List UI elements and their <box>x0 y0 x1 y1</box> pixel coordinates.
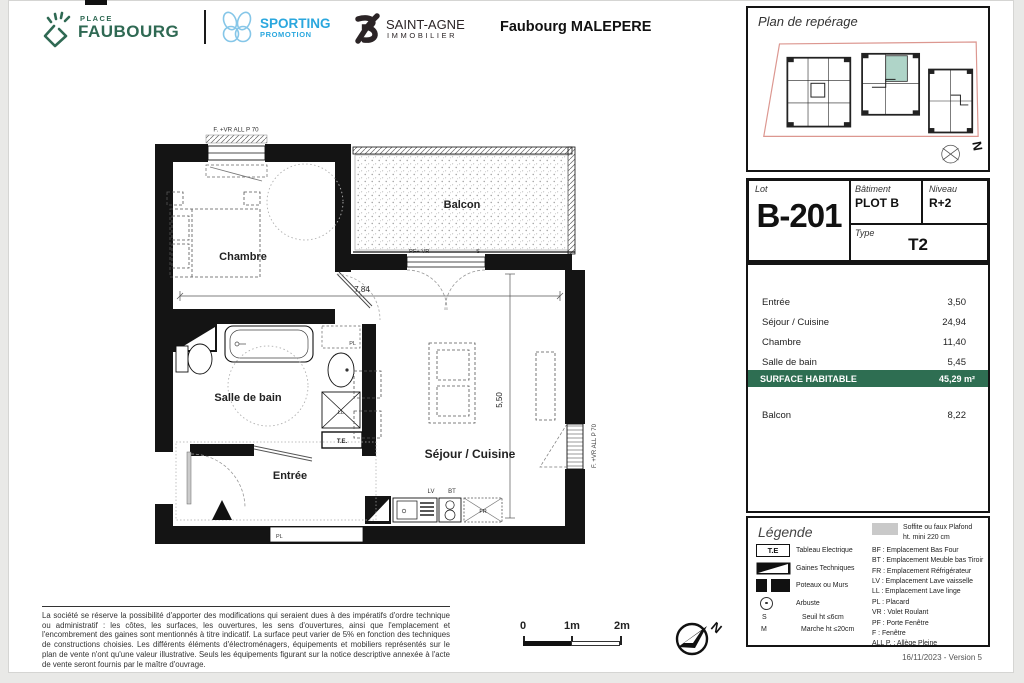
balcon-label: Balcon <box>762 410 791 421</box>
batiment-value: PLOT B <box>849 194 921 210</box>
legend-abbr: PL : Placard <box>872 598 990 608</box>
building-b <box>862 54 919 115</box>
print-mark <box>85 0 107 5</box>
dimension-width <box>177 291 563 301</box>
lot-value: B-201 <box>749 197 849 235</box>
highlighted-unit <box>886 56 908 82</box>
chambre-furniture <box>167 192 260 277</box>
soffite-label-1: Soffite ou faux Plafond <box>903 523 972 533</box>
fr-label: FR <box>479 509 486 515</box>
legend-abbr: BT : Emplacement Meuble bas Tiroir <box>872 556 990 566</box>
legend-label: Poteaux ou Murs <box>796 582 848 589</box>
surface-row: Chambre 11,40 <box>748 333 988 353</box>
batiment-label: Bâtiment <box>849 181 921 194</box>
soffite-item: Soffite ou faux Plafond ht. mini 220 cm <box>872 523 990 544</box>
sejour-furniture <box>354 343 555 438</box>
dim-height-label: 5,50 <box>495 392 504 408</box>
surfaces-box: Entrée 3,50 Séjour / Cuisine 24,94 Chamb… <box>746 263 990 513</box>
legend-label: Gaines Techniques <box>796 565 854 572</box>
disclaimer: La société se réserve la possibilité d'a… <box>42 606 450 669</box>
legend-label: Marche ht ≤20cm <box>801 626 854 633</box>
surface-value: 24,94 <box>942 317 966 328</box>
place-brand-bottom: FAUBOURG <box>78 22 179 42</box>
legend-item: Poteaux ou Murs <box>756 579 868 592</box>
project-title: Faubourg MALEPERE <box>500 19 651 35</box>
balcon-row: Balcon 8,22 <box>748 406 988 426</box>
scale-0: 0 <box>520 620 526 632</box>
turning-circle-chambre <box>267 164 343 240</box>
legend-left-column: T.E Tableau Electrique Gaines Techniques… <box>756 544 868 637</box>
sporting-butterfly-icon <box>218 9 256 45</box>
habitable-value: 45,29 m² <box>939 374 975 384</box>
legend-abbr: VR : Volet Roulant <box>872 608 990 618</box>
niveau-cell: Niveau R+2 <box>923 181 987 225</box>
window-top-label: F. +VR ALL P 70 <box>213 127 259 134</box>
bathroom: Salle de bain PL LL T.E. <box>176 326 362 461</box>
surface-label: Entrée <box>762 297 790 308</box>
room-label-sejour: Séjour / Cuisine <box>425 447 516 461</box>
scale-segment-solid <box>523 641 571 646</box>
room-label-entree: Entrée <box>273 470 307 482</box>
dim-width-label: 7,84 <box>354 285 370 294</box>
legend-abbr: F : Fenêtre <box>872 629 990 639</box>
seuil-symbol: S <box>756 614 802 621</box>
surface-label: Séjour / Cuisine <box>762 317 829 328</box>
legend-abbr: ALL P. : Allège Pleine <box>872 639 990 649</box>
marche-symbol: M <box>756 626 801 633</box>
legend-title: Légende <box>758 524 813 540</box>
legend-label: Seuil ht ≤6cm <box>802 614 844 621</box>
niveau-label: Niveau <box>923 181 987 194</box>
header: PLACE FAUBOURG SPORTING PROMOTION SAINT-… <box>36 8 676 52</box>
window-right: F. +VR ALL P 70 <box>540 423 598 469</box>
poteaux-symbol <box>756 579 796 592</box>
surface-value: 5,45 <box>948 357 967 368</box>
compass-north-label: N <box>708 619 724 637</box>
balcony-door: PF+ VR S <box>407 249 485 310</box>
habitable-label: SURFACE HABITABLE <box>760 374 857 384</box>
reperage-title: Plan de repérage <box>758 14 858 29</box>
building-a <box>787 58 850 127</box>
reperage-compass-icon: N <box>942 140 986 163</box>
legend-abbr: FR : Emplacement Réfrigérateur <box>872 567 990 577</box>
legend-item: Arbuste <box>756 597 868 610</box>
scale-segment-open <box>571 641 620 646</box>
balcon-value: 8,22 <box>948 410 967 421</box>
reperage-box: Plan de repérage <box>746 6 990 172</box>
legend-abbr: BF : Emplacement Bas Four <box>872 546 990 556</box>
lot-box: Lot B-201 Bâtiment PLOT B Niveau R+2 Typ… <box>746 178 990 263</box>
legend-abbr: PF : Porte Fenêtre <box>872 619 990 629</box>
saint-agne-icon <box>352 10 384 46</box>
building-c <box>929 70 972 133</box>
north-compass: N <box>668 612 724 660</box>
bt-label: BT <box>448 489 456 495</box>
te-symbol: T.E <box>756 544 796 557</box>
surface-value: 11,40 <box>943 337 966 348</box>
legend-item: M Marche ht ≤20cm <box>756 626 868 633</box>
legend-abbr: LL : Emplacement Lave linge <box>872 587 990 597</box>
lot-label: Lot <box>749 181 849 194</box>
surface-row: Entrée 3,50 <box>748 293 988 313</box>
legend-label: Arbuste <box>796 600 820 607</box>
room-label-chambre: Chambre <box>219 251 267 263</box>
room-label-sdb: Salle de bain <box>214 392 282 404</box>
floorplan-sheet: PLACE FAUBOURG SPORTING PROMOTION SAINT-… <box>0 0 1024 683</box>
place-faubourg-icon <box>42 10 76 48</box>
floor-plan-drawing: F. +VR ALL P 70 Balcon PF+ VR S <box>140 124 750 564</box>
seuil-label: S <box>476 249 480 255</box>
gaines-symbol <box>756 562 796 575</box>
arbuste-symbol <box>756 597 796 610</box>
soffite-symbol <box>872 523 898 535</box>
ll-label: LL <box>338 410 344 416</box>
window-top: F. +VR ALL P 70 <box>206 127 267 182</box>
surface-label: Salle de bain <box>762 357 817 368</box>
legend-box: Légende T.E Tableau Electrique Gaines Te… <box>746 516 990 647</box>
type-value: T2 <box>849 235 987 255</box>
surface-habitable-banner: SURFACE HABITABLE 45,29 m² <box>748 370 988 387</box>
soffite-label-2: ht. mini 220 cm <box>903 533 972 543</box>
type-cell: Type T2 <box>849 225 987 260</box>
legend-item: T.E Tableau Electrique <box>756 544 868 557</box>
placard-entree: PL <box>270 527 363 542</box>
surface-label: Chambre <box>762 337 801 348</box>
room-label-balcon: Balcon <box>444 199 481 211</box>
reperage-north-label: N <box>969 140 985 152</box>
legend-label: Tableau Electrique <box>796 547 853 554</box>
balcony: Balcon <box>353 147 575 254</box>
scale-2m: 2m <box>614 620 630 632</box>
pl-entree-label: PL <box>276 534 283 540</box>
lot-cell: Lot B-201 <box>749 181 851 260</box>
saintagne-brand-top: SAINT-AGNE <box>386 17 465 32</box>
scale-1m: 1m <box>564 620 580 632</box>
site-map: N <box>750 32 986 170</box>
balcony-door-label: PF+ VR <box>409 249 429 255</box>
batiment-cell: Bâtiment PLOT B <box>849 181 923 225</box>
sporting-brand-top: SPORTING <box>260 16 331 31</box>
niveau-value: R+2 <box>923 194 987 210</box>
scale-bar: 0 1m 2m <box>516 620 636 654</box>
sporting-brand-bottom: PROMOTION <box>260 30 312 39</box>
saintagne-brand-bottom: IMMOBILIER <box>387 31 457 40</box>
lv-label: LV <box>428 489 435 495</box>
legend-item: S Seuil ht ≤6cm <box>756 614 868 621</box>
surface-value: 3,50 <box>948 297 967 308</box>
dimension-height <box>505 274 515 518</box>
pl-bain-label: PL <box>349 341 356 347</box>
kitchen-units: LV BT FR <box>393 489 502 522</box>
header-divider <box>204 10 206 44</box>
surface-row: Séjour / Cuisine 24,94 <box>748 313 988 333</box>
version-text: 16/11/2023 - Version 5 <box>746 653 982 662</box>
window-right-label: F. +VR ALL P 70 <box>592 423 598 468</box>
legend-right-column: Soffite ou faux Plafond ht. mini 220 cm … <box>872 523 990 650</box>
entrance-arrow <box>212 500 232 520</box>
legend-item: Gaines Techniques <box>756 562 868 575</box>
legend-abbr: LV : Emplacement Lave vaisselle <box>872 577 990 587</box>
